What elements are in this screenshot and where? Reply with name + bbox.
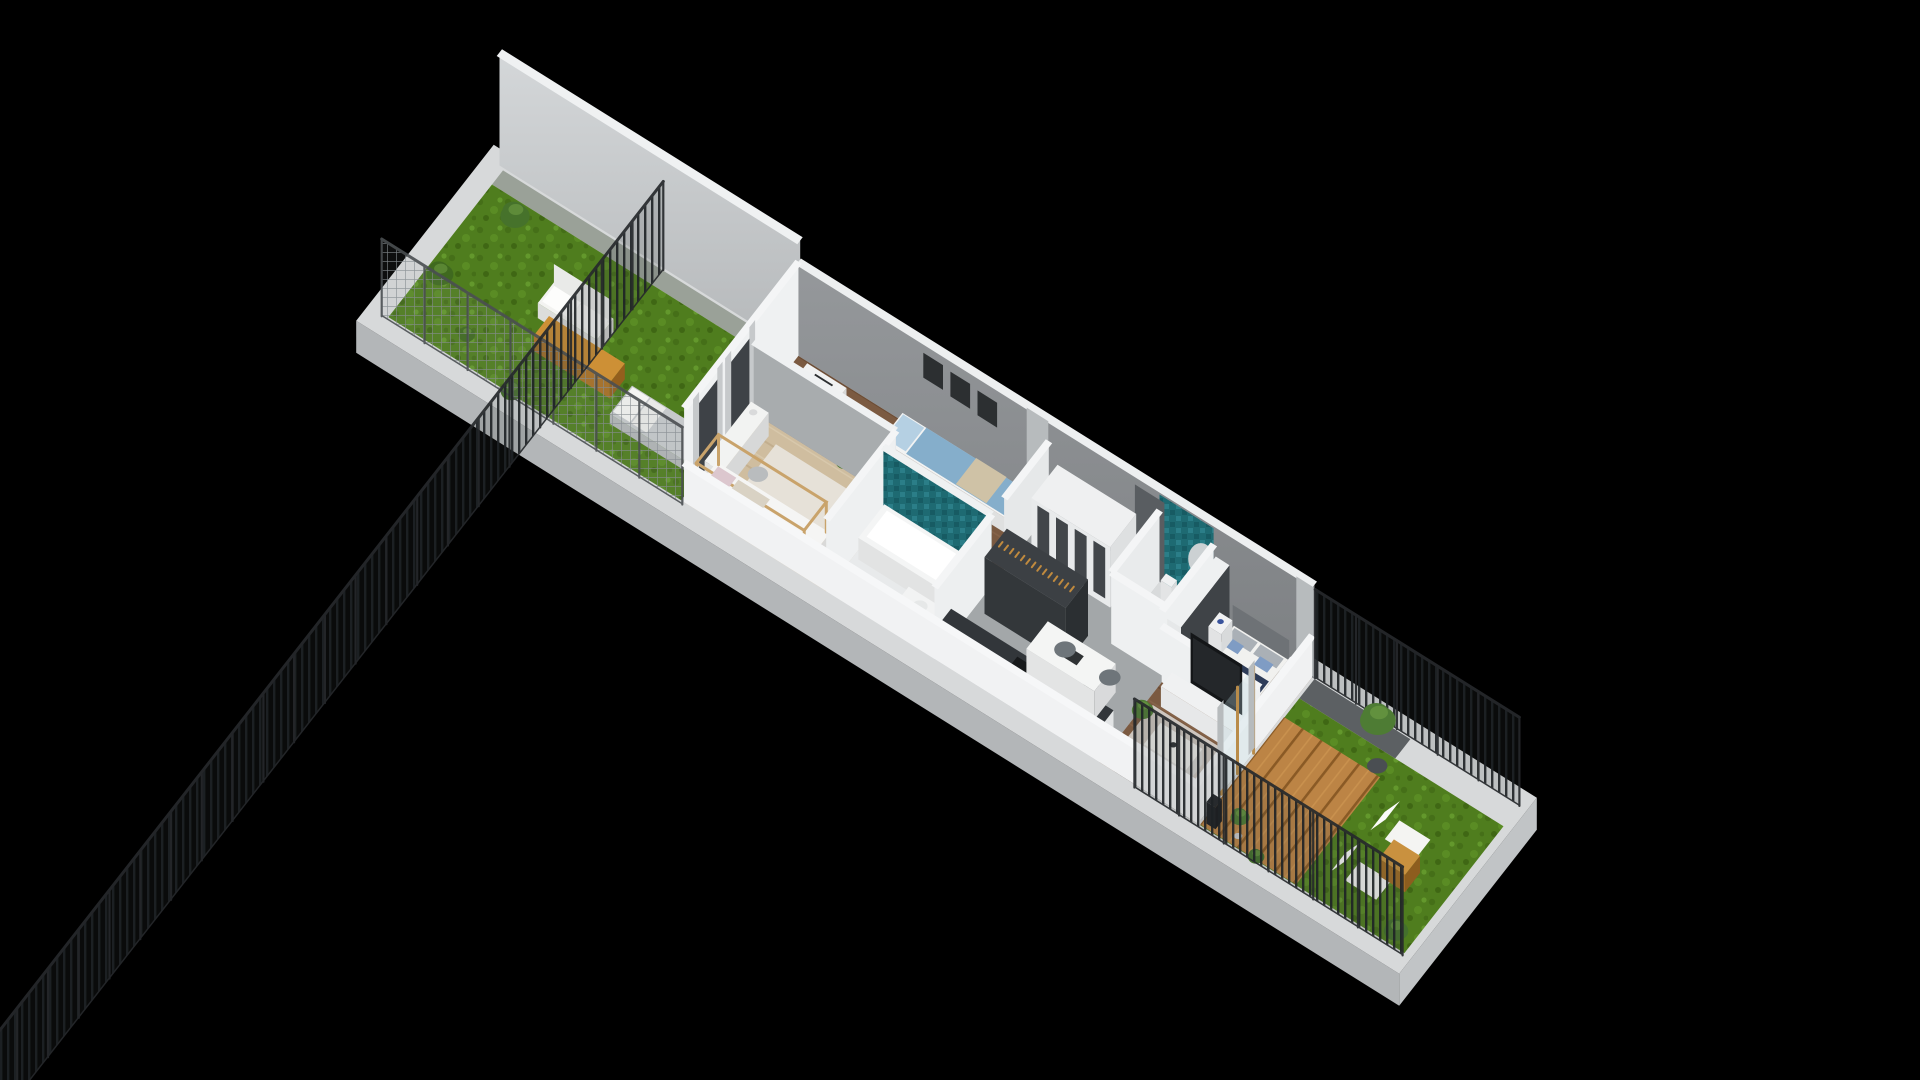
dining-chair bbox=[1099, 669, 1121, 685]
table-lamp bbox=[1217, 619, 1224, 624]
desk-chair bbox=[748, 467, 768, 482]
page: { "scene": { "kind": "isometric-3d-floor… bbox=[0, 0, 1920, 1080]
dining-chair bbox=[1054, 641, 1076, 657]
curtain bbox=[1249, 660, 1255, 755]
isometric-floorplan bbox=[0, 0, 1920, 1080]
rear-fence-se bbox=[0, 181, 663, 1080]
desk-lamp bbox=[749, 409, 757, 415]
wardrobe-open bbox=[1093, 541, 1105, 599]
floorplan-render-canvas bbox=[0, 0, 1920, 1080]
tree-pot bbox=[1367, 758, 1387, 773]
